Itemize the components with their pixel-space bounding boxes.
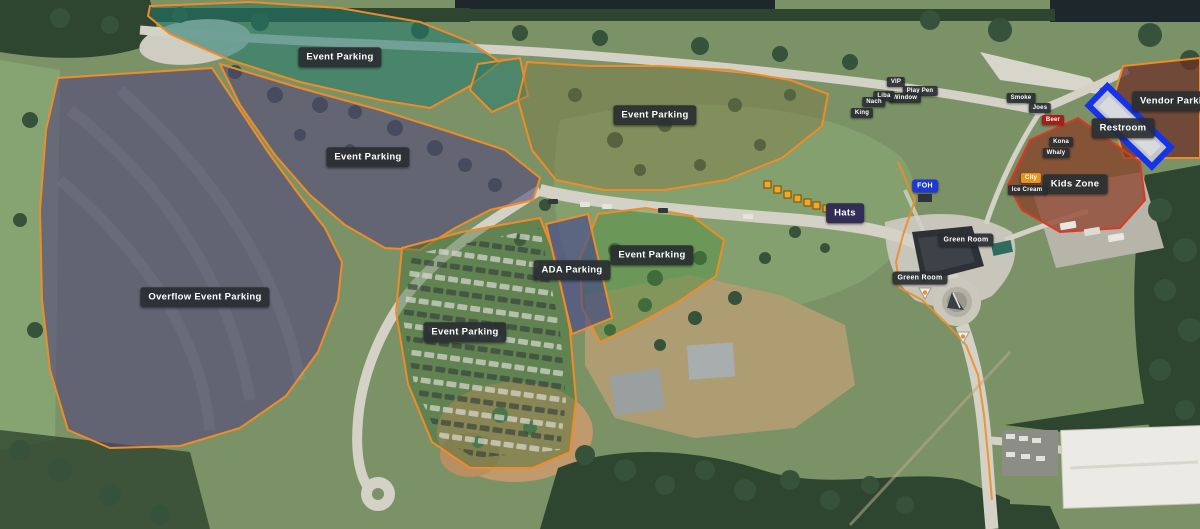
zone-label-event-parking-west: Event Parking	[326, 147, 409, 167]
zone-label-green-room-lower: Green Room	[892, 272, 947, 285]
zone-label-event-parking-north: Event Parking	[613, 105, 696, 125]
zone-label-event-parking-northwest: Event Parking	[298, 47, 381, 67]
zone-label-event-parking-south: Event Parking	[423, 322, 506, 342]
zone-label-overflow-event-parking: Overflow Event Parking	[140, 287, 269, 307]
marker-label-smoke: Smoke	[1007, 93, 1036, 103]
zone-label-restroom: Restroom	[1092, 118, 1155, 138]
zone-label-ada-parking: ADA Parking	[533, 260, 610, 280]
roundabout	[933, 278, 981, 326]
zone-label-foh: FOH	[912, 180, 938, 193]
zone-label-event-parking-center: Event Parking	[610, 245, 693, 265]
marker-label-city: City	[1021, 173, 1041, 183]
marker-label-kona: Kona	[1049, 137, 1073, 147]
foh-structure	[918, 194, 932, 202]
zone-label-kids-zone: Kids Zone	[1043, 174, 1108, 194]
marker-label-nach: Nach	[862, 97, 885, 107]
zone-label-vendor-parking: Vendor Parking	[1132, 91, 1200, 111]
marker-label-ice-cream: Ice Cream	[1008, 185, 1047, 195]
zone-label-green-room-upper: Green Room	[938, 234, 993, 247]
marker-label-whaly: Whaly	[1043, 148, 1070, 158]
zone-label-hats: Hats	[826, 203, 864, 223]
marker-label-beer: Beer	[1042, 115, 1064, 125]
marker-label-king: King	[851, 108, 873, 118]
marker-label-joes: Joes	[1029, 103, 1051, 113]
event-site-map[interactable]: Event Parking Event Parking Event Parkin…	[0, 0, 1200, 529]
